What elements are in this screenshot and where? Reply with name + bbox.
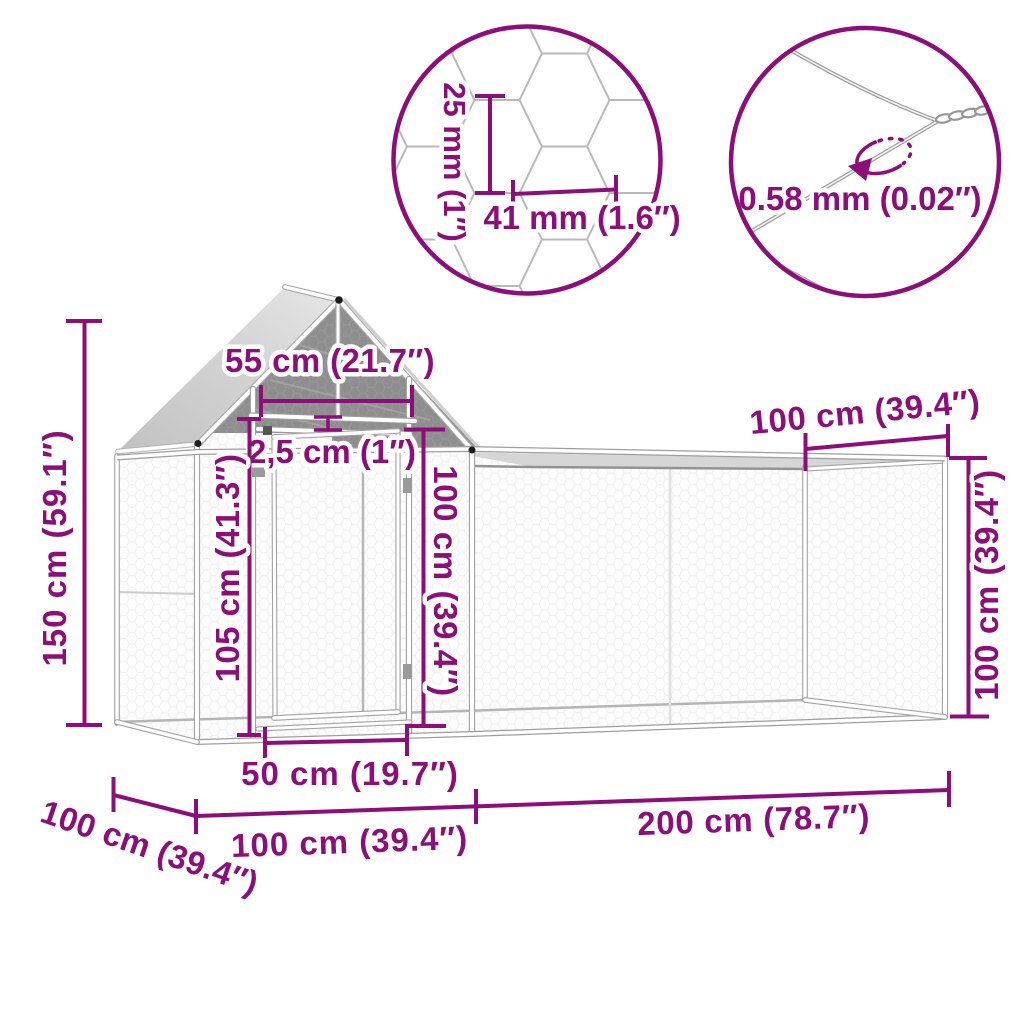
svg-text:25 mm (1″): 25 mm (1″) (437, 82, 472, 242)
svg-text:0.58 mm (0.02″): 0.58 mm (0.02″) (738, 180, 981, 217)
svg-text:105 cm (41.3″): 105 cm (41.3″) (209, 454, 246, 683)
svg-text:100 cm (39.4″): 100 cm (39.4″) (968, 469, 1005, 701)
svg-text:100 cm (39.4″): 100 cm (39.4″) (427, 465, 464, 697)
svg-text:50 cm (19.7″): 50 cm (19.7″) (241, 755, 459, 792)
svg-text:150 cm (59.1″): 150 cm (59.1″) (36, 429, 73, 666)
svg-text:55 cm (21.7″): 55 cm (21.7″) (225, 342, 435, 379)
svg-text:41 mm (1.6″): 41 mm (1.6″) (483, 199, 680, 236)
svg-text:2,5 cm (1″): 2,5 cm (1″) (248, 433, 416, 470)
